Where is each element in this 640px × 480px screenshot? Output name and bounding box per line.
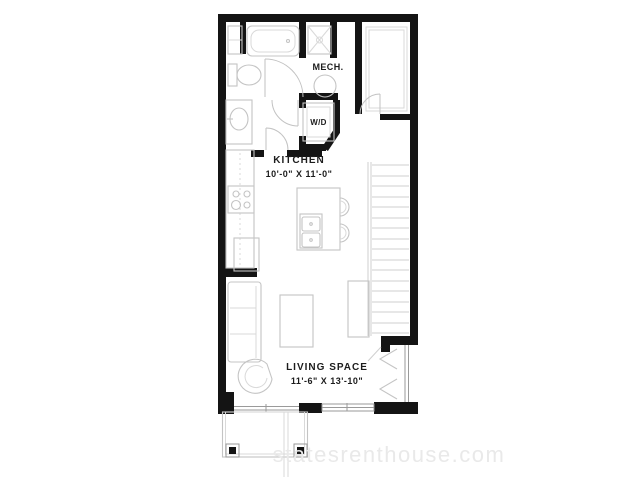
island-sink-basin-2: [302, 233, 320, 247]
wall-wd-diagonal: [325, 131, 337, 149]
sink-drain-1: [310, 223, 313, 226]
armchair-inner: [245, 366, 267, 388]
wall-tub-right: [299, 22, 306, 58]
bar-stool-1-inner: [340, 201, 346, 213]
refrigerator: [234, 238, 259, 271]
storage-room: [366, 27, 407, 111]
floor-plan-drawing: MECH. W/D: [0, 0, 640, 480]
kitchen-dimensions: 10'-0" X 11'-0": [266, 169, 333, 179]
wall-right-upper: [410, 14, 418, 345]
wall-top: [218, 14, 418, 22]
kitchen-label: KITCHEN: [273, 155, 324, 166]
storage-room-floor-edge-inner: [369, 30, 404, 108]
range: [228, 186, 254, 213]
range-burner-1: [233, 191, 239, 197]
range-burner-3: [232, 201, 241, 210]
media-console: [348, 281, 369, 337]
kitchen-island: [297, 188, 340, 250]
wall-kitchen-top-left: [251, 150, 264, 157]
window-break-chevron-lower: [380, 379, 397, 399]
wall-storage-bottom: [380, 114, 411, 120]
mech-label: MECH.: [313, 62, 344, 72]
bathtub-inner: [251, 30, 295, 52]
coffee-table: [280, 295, 313, 347]
living-dimensions: 11'-6" X 13'-10": [291, 376, 363, 386]
wall-closet-divider: [240, 22, 246, 54]
staircase: [368, 162, 409, 361]
laundry-label: W/D: [310, 118, 326, 127]
wall-bottom-left-pier: [218, 392, 234, 414]
laundry-closet: W/D: [303, 103, 334, 141]
bathroom-door-swing: [265, 59, 303, 97]
living-space: LIVING SPACE 11'-6" X 13'-10": [228, 281, 369, 393]
stair-rail-start: [368, 347, 381, 361]
wall-left: [218, 14, 226, 406]
porch-post-left-core: [229, 447, 236, 454]
wall-stair-corner-stub: [381, 336, 390, 352]
island-sink-basin-1: [302, 217, 320, 231]
range-burner-4: [244, 202, 250, 208]
armchair: [238, 359, 272, 393]
laundry-door-swing: [272, 100, 298, 126]
toilet-tank: [228, 64, 237, 86]
bathtub-drain: [287, 40, 290, 43]
range-burner-2: [244, 191, 250, 197]
living-label: LIVING SPACE: [286, 362, 368, 373]
toilet-bowl: [237, 65, 261, 85]
wall-storage-left: [355, 22, 362, 114]
wall-kitchen-bottom: [218, 268, 257, 277]
storage-room-floor-edge: [366, 27, 407, 111]
watermark-text: statesrenthouse.com: [273, 442, 506, 467]
floor-plan-image: MECH. W/D: [0, 0, 640, 480]
hall-door-swing: [266, 128, 288, 150]
wall-bottom-right-pier: [374, 402, 418, 414]
sink-drain-2: [310, 239, 313, 242]
stair-treads: [372, 165, 409, 333]
bar-stool-2-inner: [340, 227, 346, 239]
doors: [265, 59, 380, 150]
kitchen: KITCHEN 10'-0" X 11'-0": [226, 150, 349, 271]
bathroom: [226, 26, 299, 144]
mech-room: MECH.: [308, 26, 344, 97]
